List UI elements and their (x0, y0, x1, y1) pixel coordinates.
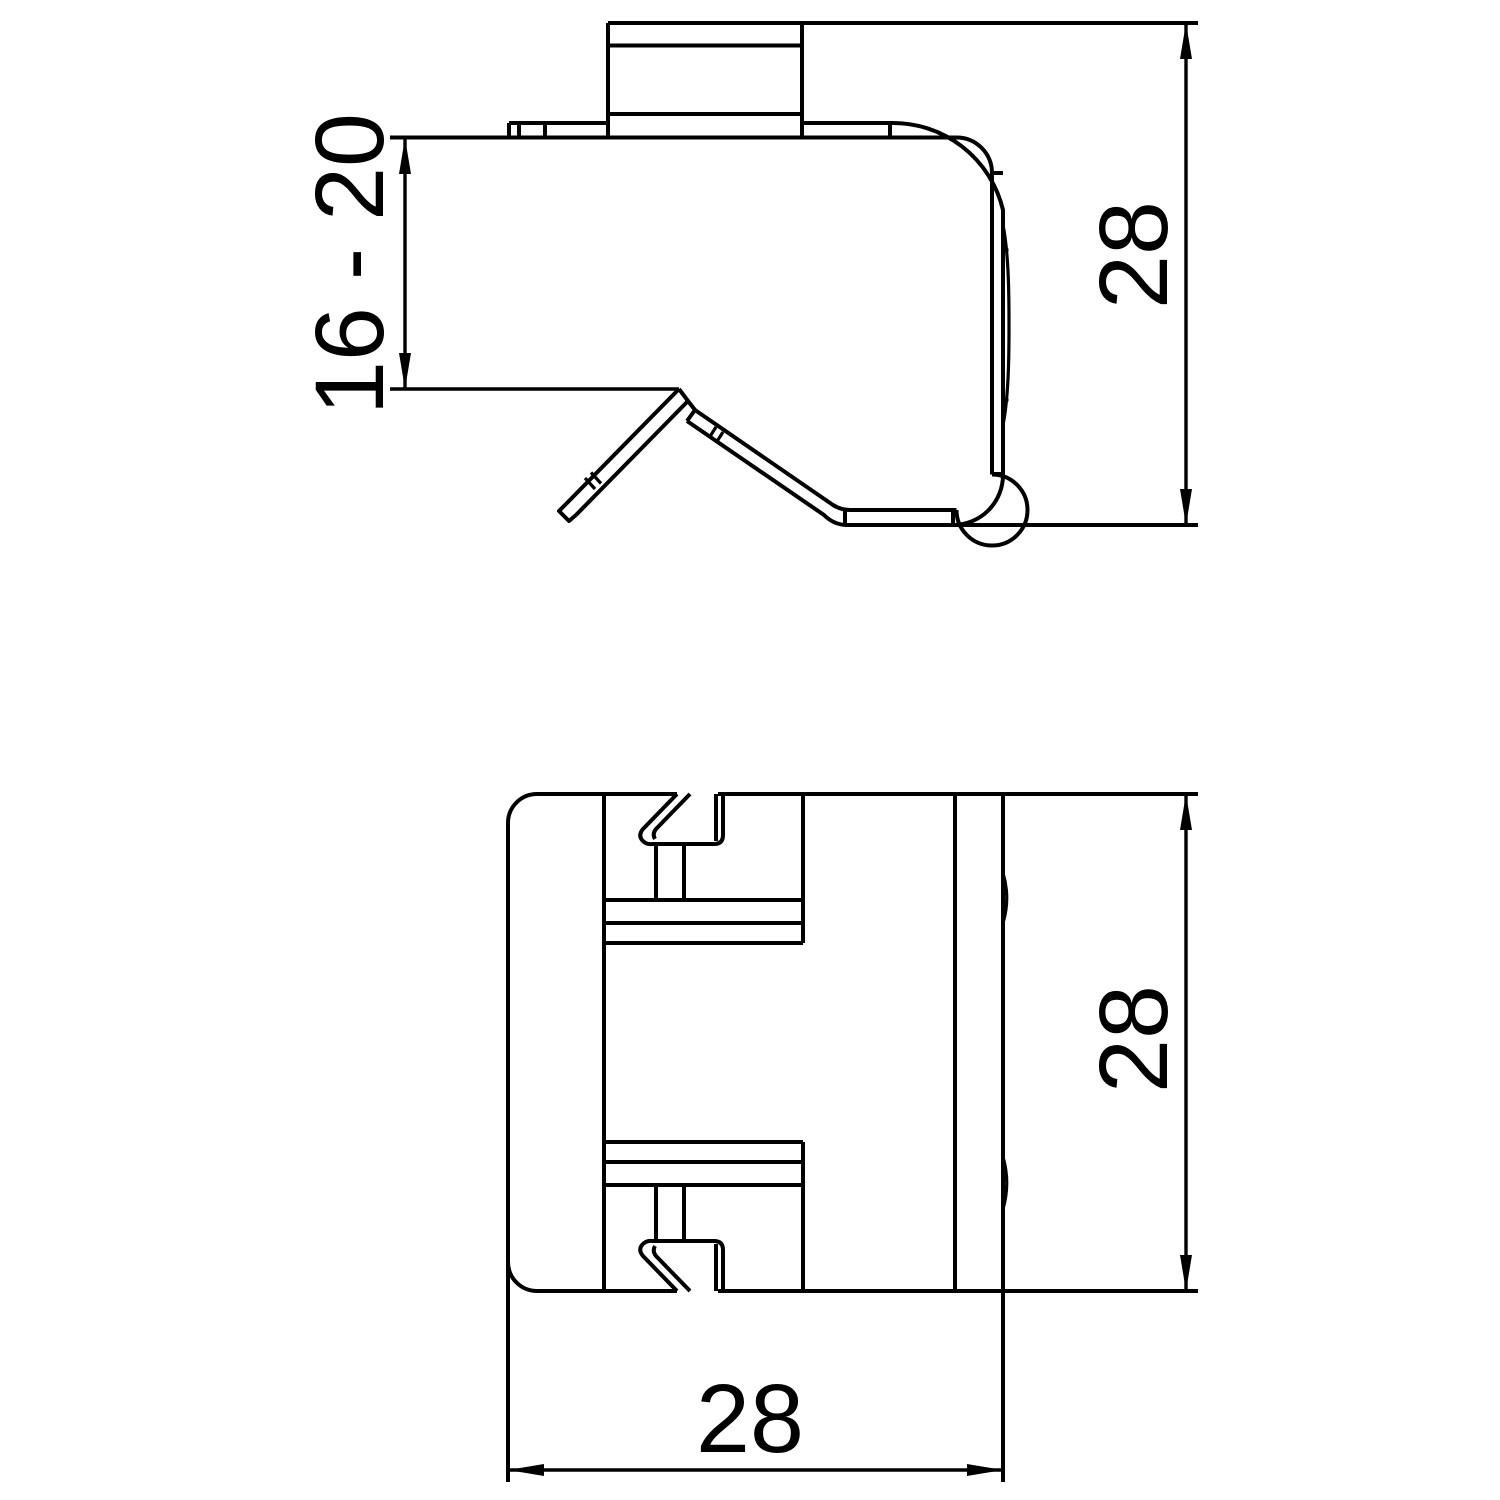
dimension-front-height: 28 (1079, 794, 1192, 1291)
clamp-body-wall (845, 123, 1198, 546)
side-view: 16 - 20 28 (295, 23, 1198, 546)
technical-drawing-page: 16 - 20 28 (0, 0, 1500, 1500)
arrowhead-down (1180, 1255, 1192, 1291)
arrowhead-up (1180, 794, 1192, 830)
dimension-label-front-width: 28 (696, 1364, 804, 1473)
front-view: 28 28 (508, 794, 1198, 1482)
lower-flange-assembly (604, 1142, 803, 1291)
dimension-side-height: 28 (1079, 23, 1192, 525)
arrowhead-right (967, 1464, 1003, 1476)
arrowhead-down (1180, 489, 1192, 525)
dimension-label-clamping-range: 16 - 20 (295, 113, 404, 415)
dimension-label-side-height: 28 (1079, 201, 1188, 309)
fixing-block (608, 23, 1198, 138)
dimension-label-front-height: 28 (1079, 985, 1188, 1093)
arrowhead-left (508, 1464, 544, 1476)
dimension-clamping-range: 16 - 20 (295, 113, 679, 415)
dimension-front-width: 28 (508, 1364, 1003, 1476)
clamp-technical-drawing: 16 - 20 28 (0, 0, 1500, 1500)
top-flange (390, 123, 957, 138)
body-outline (508, 794, 1198, 1482)
arrowhead-up (1180, 23, 1192, 59)
upper-flange-assembly (604, 794, 803, 943)
spring-tongue (559, 389, 957, 525)
